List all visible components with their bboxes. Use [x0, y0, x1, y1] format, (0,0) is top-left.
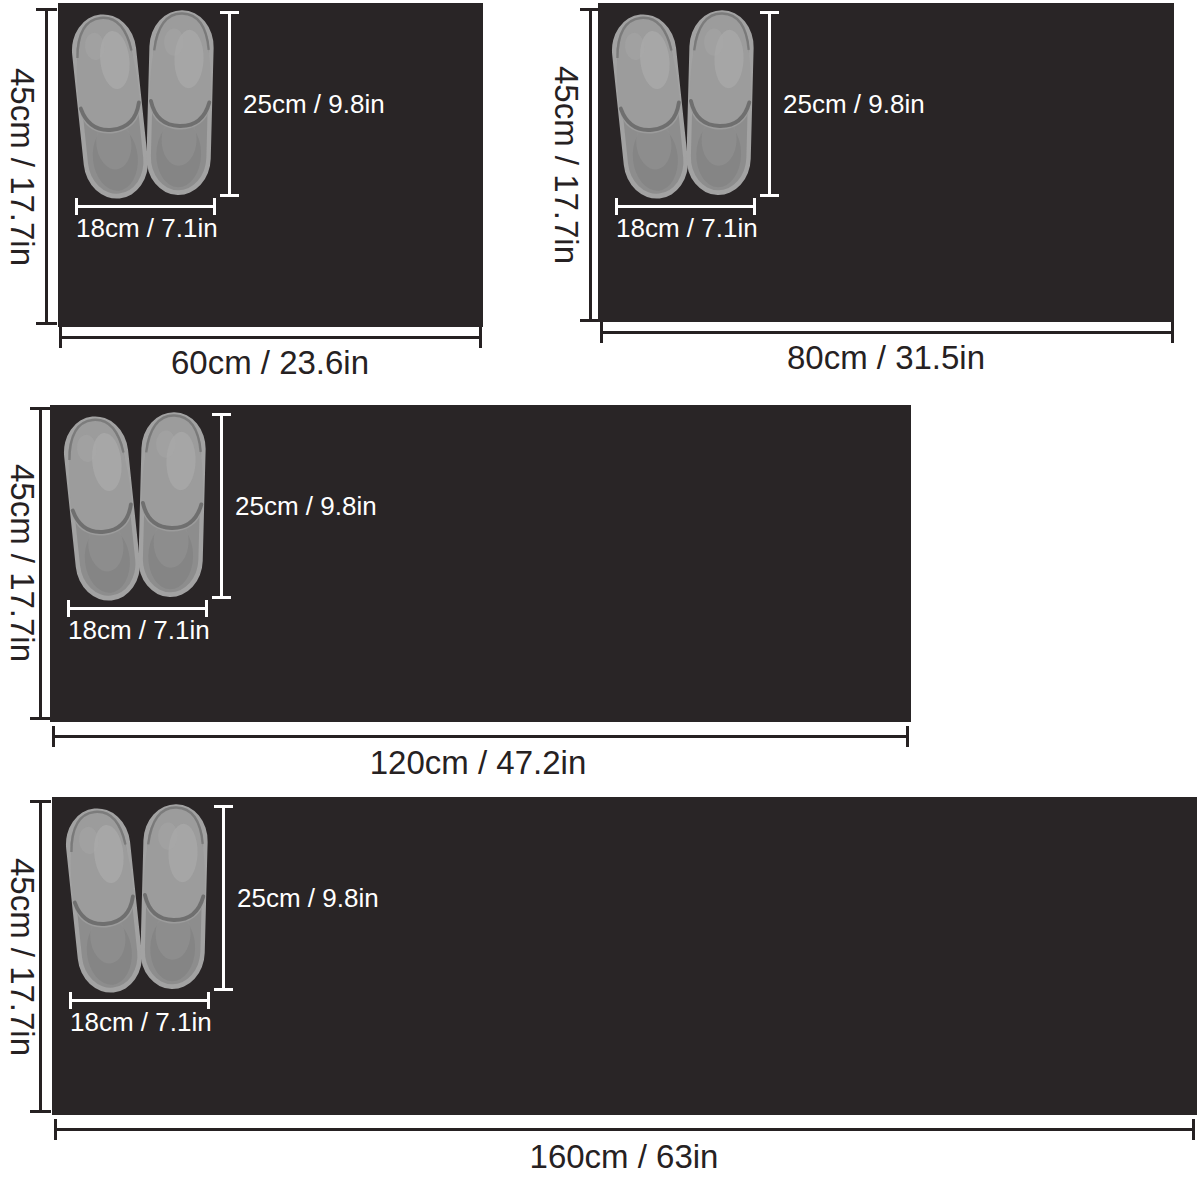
mat4-width-dimension-line	[54, 1128, 1195, 1131]
mat2-surface: 25cm / 9.8in 18cm / 7.1in	[598, 3, 1174, 322]
product-dimension-diagram: 45cm / 17.7in 25cm / 9.8in 18cm / 7.1in …	[0, 0, 1200, 1200]
mat4-width-label: 160cm / 63in	[530, 1140, 719, 1173]
slipper-length-label: 25cm / 9.8in	[783, 91, 925, 117]
dimension-line-cap	[1192, 1119, 1195, 1140]
slippers-image	[611, 9, 757, 204]
dimension-line-cap	[30, 717, 51, 720]
slipper-length-label: 25cm / 9.8in	[235, 493, 377, 519]
dimension-line-cap	[760, 11, 779, 14]
slipper-width-label: 18cm / 7.1in	[68, 617, 210, 643]
dimension-line-cap	[600, 322, 603, 343]
mat3-width-label: 120cm / 47.2in	[370, 746, 586, 779]
slipper-length-dimension-line	[220, 413, 223, 599]
dimension-line-cap	[54, 1119, 57, 1140]
dimension-line-cap	[220, 11, 239, 14]
slippers-image	[63, 411, 209, 606]
dimension-line-cap	[36, 8, 57, 11]
slipper-length-label: 25cm / 9.8in	[243, 91, 385, 117]
dimension-line-cap	[30, 1110, 51, 1113]
slipper-width-dimension-line	[75, 205, 216, 208]
slipper-length-dimension-line	[768, 11, 771, 197]
dimension-line-cap	[59, 327, 62, 348]
slippers-image	[71, 9, 217, 204]
dimension-line-cap	[212, 596, 231, 599]
dimension-line-cap	[906, 726, 909, 747]
mat1-width-dimension-line	[59, 336, 482, 339]
slipper-width-dimension-line	[69, 999, 210, 1002]
slipper-width-dimension-line	[615, 205, 756, 208]
dimension-line-cap	[1171, 322, 1174, 343]
mat3-surface: 25cm / 9.8in 18cm / 7.1in	[50, 405, 911, 722]
slipper-width-label: 18cm / 7.1in	[616, 215, 758, 241]
mat4-surface: 25cm / 9.8in 18cm / 7.1in	[52, 797, 1197, 1115]
mat2-height-dimension-line	[589, 8, 592, 322]
mat3-height-label: 45cm / 17.7in	[6, 464, 39, 662]
mat3-width-dimension-line	[52, 735, 909, 738]
dimension-line-cap	[212, 413, 231, 416]
dimension-line-cap	[30, 800, 51, 803]
mat4-height-label: 45cm / 17.7in	[6, 858, 39, 1056]
dimension-line-cap	[760, 194, 779, 197]
mat2-width-label: 80cm / 31.5in	[787, 341, 985, 374]
slipper-width-label: 18cm / 7.1in	[76, 215, 218, 241]
slippers-image	[65, 803, 211, 998]
mat1-height-label: 45cm / 17.7in	[6, 68, 39, 266]
dimension-line-cap	[214, 805, 233, 808]
slipper-length-dimension-line	[228, 11, 231, 197]
slipper-length-dimension-line	[222, 805, 225, 991]
dimension-line-cap	[36, 322, 57, 325]
slipper-width-label: 18cm / 7.1in	[70, 1009, 212, 1035]
dimension-line-cap	[214, 988, 233, 991]
mat1-width-label: 60cm / 23.6in	[171, 346, 369, 379]
dimension-line-cap	[220, 194, 239, 197]
dimension-line-cap	[30, 407, 51, 410]
dimension-line-cap	[479, 327, 482, 348]
mat1-surface: 25cm / 9.8in 18cm / 7.1in	[58, 3, 483, 327]
mat2-width-dimension-line	[600, 331, 1174, 334]
dimension-line-cap	[52, 726, 55, 747]
slipper-width-dimension-line	[67, 607, 208, 610]
mat2-height-label: 45cm / 17.7in	[550, 66, 583, 264]
mat1-height-dimension-line	[45, 8, 48, 325]
slipper-length-label: 25cm / 9.8in	[237, 885, 379, 911]
